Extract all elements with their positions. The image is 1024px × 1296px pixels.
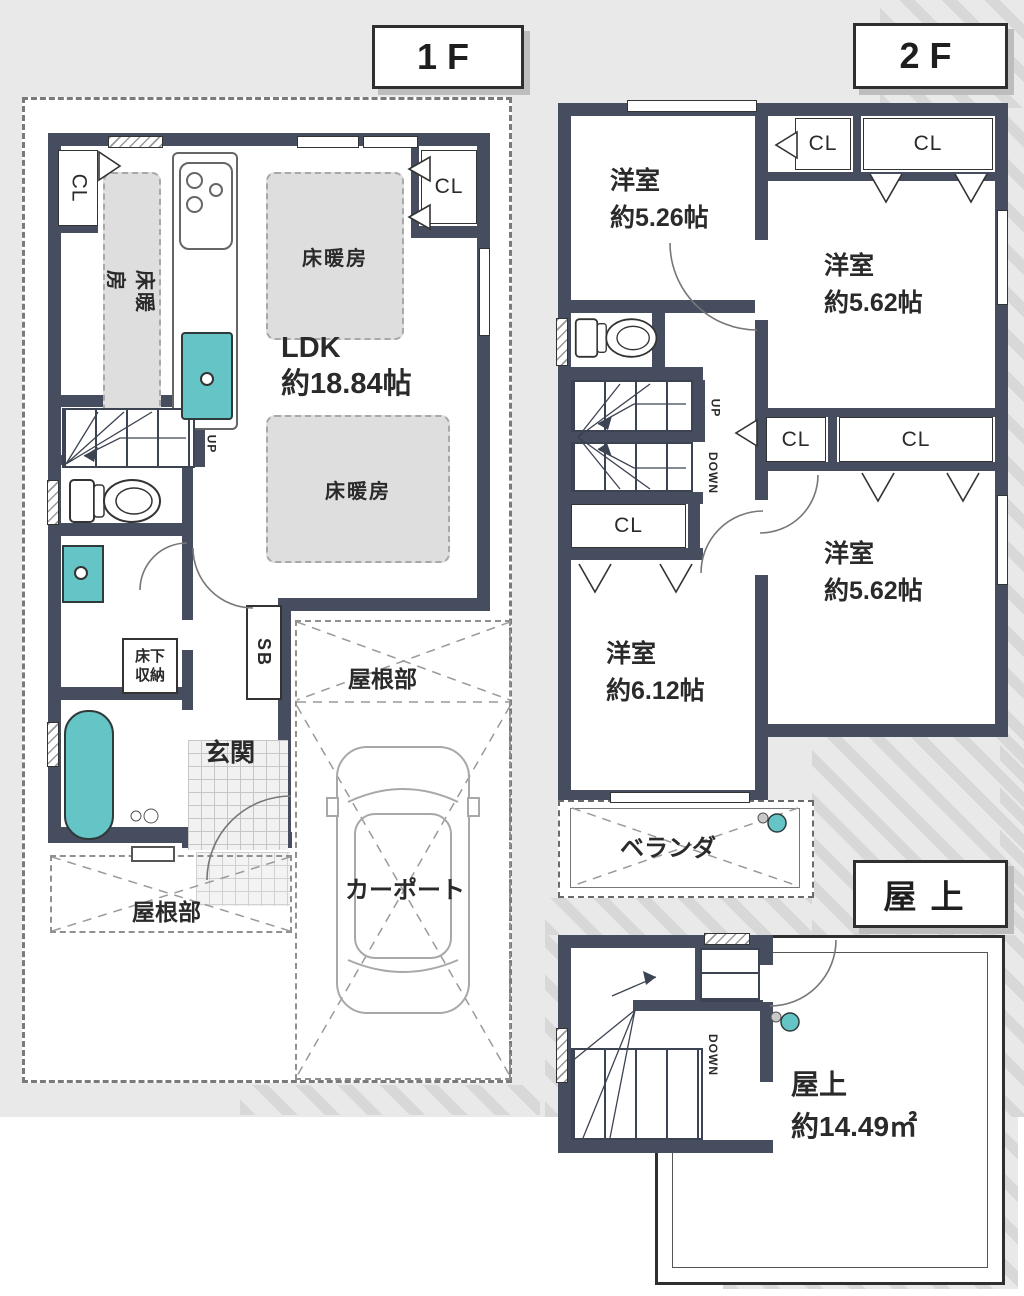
toilet-icon-2f [571, 312, 663, 364]
wall [688, 492, 700, 560]
room-size: 約6.12帖 [606, 673, 705, 710]
underfloor-label-1: 床下 [135, 647, 165, 666]
room-size: 約5.62帖 [824, 285, 923, 322]
room-name: 洋室 [606, 636, 705, 673]
ldk-label: LDK 約18.84帖 [281, 330, 412, 402]
wall [558, 103, 1008, 116]
wall [558, 1140, 773, 1153]
ldk-size: 約18.84帖 [281, 366, 412, 402]
bathtub [64, 710, 114, 840]
faucet-icon [200, 372, 214, 386]
wall [755, 172, 1008, 181]
wall [652, 300, 755, 313]
title-1f: 1F [417, 36, 479, 78]
wall [755, 320, 768, 408]
wall [571, 432, 703, 442]
closet-1f-top-left: CL [58, 150, 98, 226]
toilet-icon-1f [66, 472, 166, 530]
closet-label: CL [809, 132, 838, 156]
carport-label: カーポート [345, 870, 465, 905]
floor-heating-ldk-upper: 床暖房 [266, 172, 404, 340]
closet-label: CL [902, 428, 931, 452]
window [556, 1028, 568, 1083]
window [297, 136, 359, 148]
floor-heating-label: 床暖房 [325, 475, 391, 504]
wall [411, 146, 419, 238]
closet-label: CL [914, 132, 943, 156]
floor-heating-label: 床暖房 [103, 270, 161, 324]
window [47, 722, 59, 767]
closet-2f: CL [766, 417, 826, 462]
window [479, 248, 490, 336]
window [556, 318, 568, 366]
floor-2f-white-left [565, 732, 763, 794]
wall [755, 724, 1008, 737]
underfloor-label-2: 収納 [135, 666, 165, 685]
title-box-1f: 1F [372, 25, 524, 89]
stairs-2f-up-run [571, 380, 693, 432]
window [610, 792, 750, 803]
stairs-roof-lower [571, 1048, 703, 1140]
wall [995, 103, 1008, 737]
window [704, 933, 750, 945]
closet-2f: CL [571, 504, 686, 548]
title-box-roof: 屋上 [853, 860, 1008, 928]
closet-2f: CL [795, 118, 851, 170]
washbasin-bowl-icon [74, 566, 88, 580]
bath-bench [131, 846, 175, 862]
burner-icon [186, 196, 203, 213]
closet-label: CL [435, 175, 464, 199]
stairs-roof-upper [700, 948, 760, 1002]
rooftop-size: 約14.49㎡ [791, 1106, 917, 1148]
room-name: 洋室 [824, 248, 923, 285]
window [47, 480, 59, 525]
window [997, 495, 1008, 585]
hatch-below-lot [240, 1085, 540, 1115]
closet-1f-top-right: CL [421, 150, 477, 224]
wall [558, 103, 571, 803]
window [363, 136, 418, 148]
title-box-2f: 2F [853, 23, 1008, 89]
ldk-name: LDK [281, 330, 412, 366]
rooftop-label: 屋上 約14.49㎡ [791, 1064, 917, 1148]
stairs-2f-down-run [571, 442, 693, 492]
stairs-down-label-roof: DOWN [700, 1015, 726, 1095]
wall [828, 412, 837, 462]
closet-label: CL [614, 514, 643, 538]
wall [182, 455, 193, 620]
room-label-2f-4: 洋室 約6.12帖 [606, 636, 705, 710]
floor-heating-ldk-lower: 床暖房 [266, 415, 450, 563]
floor-heating-kitchen: 床暖房 [103, 172, 161, 422]
window [997, 210, 1008, 305]
hatch-below-veranda [545, 898, 812, 935]
title-roof: 屋上 [884, 870, 978, 918]
wall [760, 1002, 773, 1082]
wall [755, 462, 1008, 471]
room-label-2f-1: 洋室 約5.26帖 [610, 163, 709, 237]
closet-2f: CL [863, 118, 993, 170]
closet-2f: CL [839, 417, 993, 462]
shoe-box-label: SB [253, 638, 274, 667]
wall [477, 133, 490, 610]
floor-heating-label: 床暖房 [302, 242, 368, 271]
title-2f: 2F [899, 35, 961, 77]
room-label-2f-3: 洋室 約5.62帖 [824, 536, 923, 610]
window [108, 136, 163, 148]
stairs-1f [62, 408, 195, 468]
entrance-label: 玄関 [205, 733, 255, 769]
underfloor-storage: 床下 収納 [122, 638, 178, 694]
shoe-box: SB [246, 605, 282, 700]
room-size: 約5.26帖 [610, 200, 709, 237]
stairs-down-label-2f: DOWN [700, 438, 726, 508]
window [627, 100, 757, 112]
stairs-up-label-1f: UP [198, 418, 224, 470]
room-name: 洋室 [824, 536, 923, 573]
wall [290, 598, 490, 611]
room-name: 洋室 [610, 163, 709, 200]
wall [755, 724, 768, 803]
room-size: 約5.62帖 [824, 573, 923, 610]
wall [182, 650, 193, 710]
closet-label: CL [66, 174, 90, 203]
wall [558, 367, 703, 380]
wall [411, 226, 487, 238]
veranda-label: ベランダ [620, 828, 716, 863]
wall [558, 548, 703, 560]
floor-plan-page: 1F CL CL [0, 0, 1024, 1296]
burner-icon [209, 183, 223, 197]
roof-part-label-top: 屋根部 [348, 660, 417, 694]
stairs-up-label-2f: UP [702, 382, 728, 434]
rooftop-name: 屋上 [791, 1064, 917, 1106]
wall [558, 492, 703, 504]
burner-icon [186, 172, 203, 189]
wall [853, 116, 861, 172]
wall [760, 935, 773, 965]
closet-label: CL [782, 428, 811, 452]
wall [755, 575, 768, 724]
roof-part-label-bottom: 屋根部 [132, 893, 201, 927]
room-label-2f-2: 洋室 約5.62帖 [824, 248, 923, 322]
wall [755, 408, 1008, 417]
